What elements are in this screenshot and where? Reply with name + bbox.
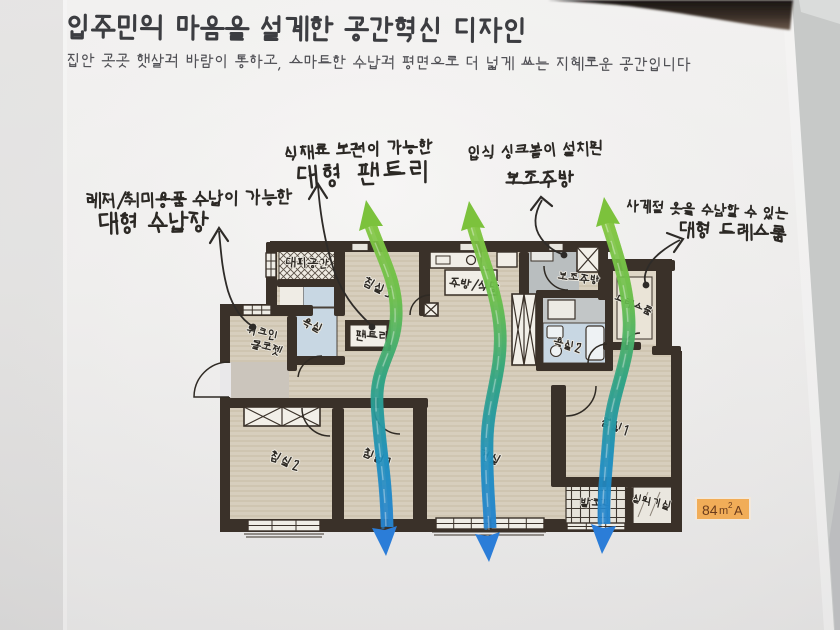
svg-text:2: 2 [728, 501, 733, 510]
svg-text:m: m [719, 505, 728, 517]
svg-text:84: 84 [702, 502, 718, 518]
svg-text:A: A [734, 503, 743, 518]
